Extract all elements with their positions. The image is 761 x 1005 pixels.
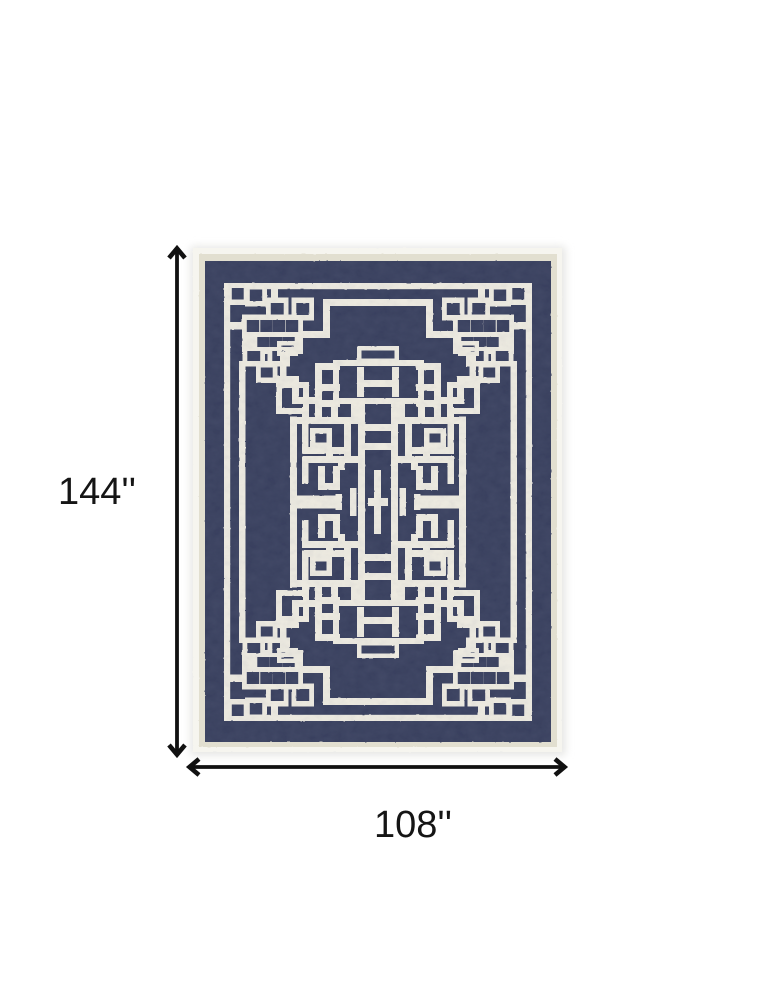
svg-text:144'': 144'' xyxy=(58,471,136,513)
svg-text:108'': 108'' xyxy=(374,804,452,846)
